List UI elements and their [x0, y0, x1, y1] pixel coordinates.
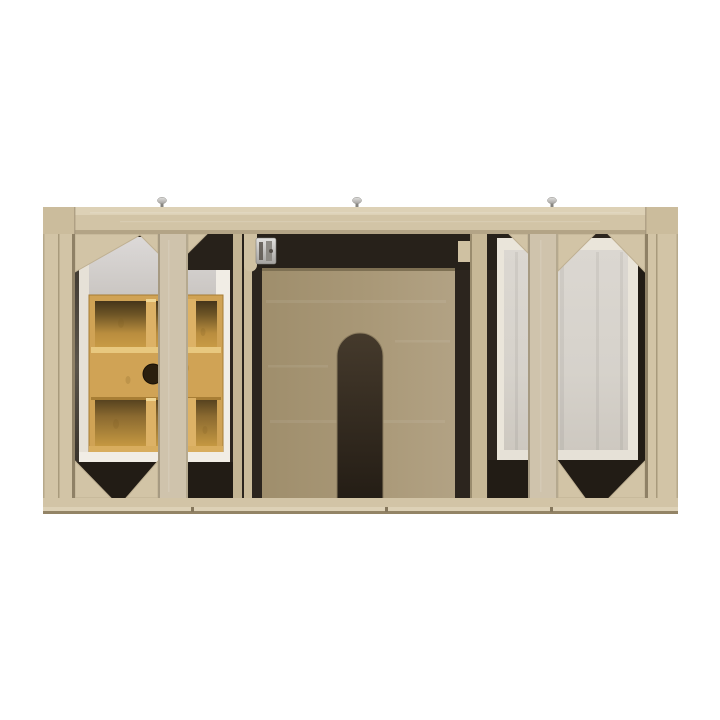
organizer-divider — [146, 398, 156, 448]
organizer-bottom-rim — [89, 446, 223, 452]
top-rail-corner-block — [43, 207, 75, 234]
bottom-rail-seam — [191, 507, 194, 512]
top-rail — [43, 207, 678, 234]
corner-block-seam — [74, 207, 76, 234]
organizer-divider-cap — [146, 398, 156, 401]
vanity-product-photo — [0, 0, 720, 720]
stile-grain — [540, 240, 542, 492]
stile-edge — [528, 234, 530, 498]
center-bay — [188, 233, 528, 500]
glide-mount-tab — [458, 241, 470, 262]
post-inner-edge — [645, 234, 648, 498]
panel-top-edge — [262, 268, 455, 271]
stile-face — [158, 234, 188, 498]
pin-head — [548, 197, 557, 203]
bamboo-organizer — [89, 295, 223, 452]
left-stile — [158, 234, 188, 498]
pin-head — [158, 197, 167, 203]
stile-edge — [186, 234, 188, 498]
right-post — [645, 234, 678, 498]
drawer-glide-rail — [470, 234, 487, 498]
right-drawer-right-edge — [628, 250, 638, 460]
organizer-divider — [146, 299, 156, 348]
hinge-slot — [259, 242, 263, 260]
vanity-cabinet-illustration — [0, 0, 720, 720]
right-bay — [488, 238, 646, 498]
stile-face — [528, 234, 558, 498]
plumbing-arch-cutout — [337, 333, 383, 500]
top-rail-bottom-edge — [43, 230, 678, 234]
post-groove — [58, 234, 60, 498]
corner-block-seam — [645, 207, 647, 234]
post-outer-edge — [677, 234, 679, 498]
left-post — [43, 234, 75, 498]
left-bay-lower-shadow — [188, 462, 233, 498]
drawer-glide-rail — [244, 234, 252, 498]
left-bay — [75, 234, 233, 498]
pin-head — [353, 197, 362, 203]
bottom-rail-seam — [385, 507, 388, 512]
right-drawer-bottom-edge — [500, 450, 638, 460]
stile-edge — [158, 234, 160, 498]
stile-grain — [168, 240, 170, 492]
stile-edge — [556, 234, 558, 498]
bottom-rail-seam — [550, 507, 553, 512]
top-rail-corner-block — [646, 207, 678, 234]
top-rail-highlight — [43, 207, 678, 215]
bottom-rail-edge — [43, 511, 678, 514]
post-groove — [656, 234, 658, 498]
hinge-screw — [269, 249, 273, 253]
post-outer-edge — [43, 234, 45, 498]
hinge-bracket-end — [244, 259, 257, 272]
post-face — [645, 234, 678, 498]
bottom-rail — [43, 498, 678, 514]
right-stile — [528, 234, 558, 498]
drawer-bottom-edge — [79, 452, 230, 462]
organizer-divider-cap — [146, 299, 156, 302]
post-inner-edge — [72, 234, 75, 498]
right-drawer-left-edge — [497, 245, 504, 462]
bottom-rail-lip — [43, 507, 678, 511]
drawer-left-edge — [79, 250, 89, 462]
organizer-tray-top-edge — [91, 347, 221, 353]
drawer-glide-rail — [233, 234, 242, 498]
glide-rail-edge — [470, 234, 472, 498]
drawer-side-panel — [504, 250, 630, 452]
